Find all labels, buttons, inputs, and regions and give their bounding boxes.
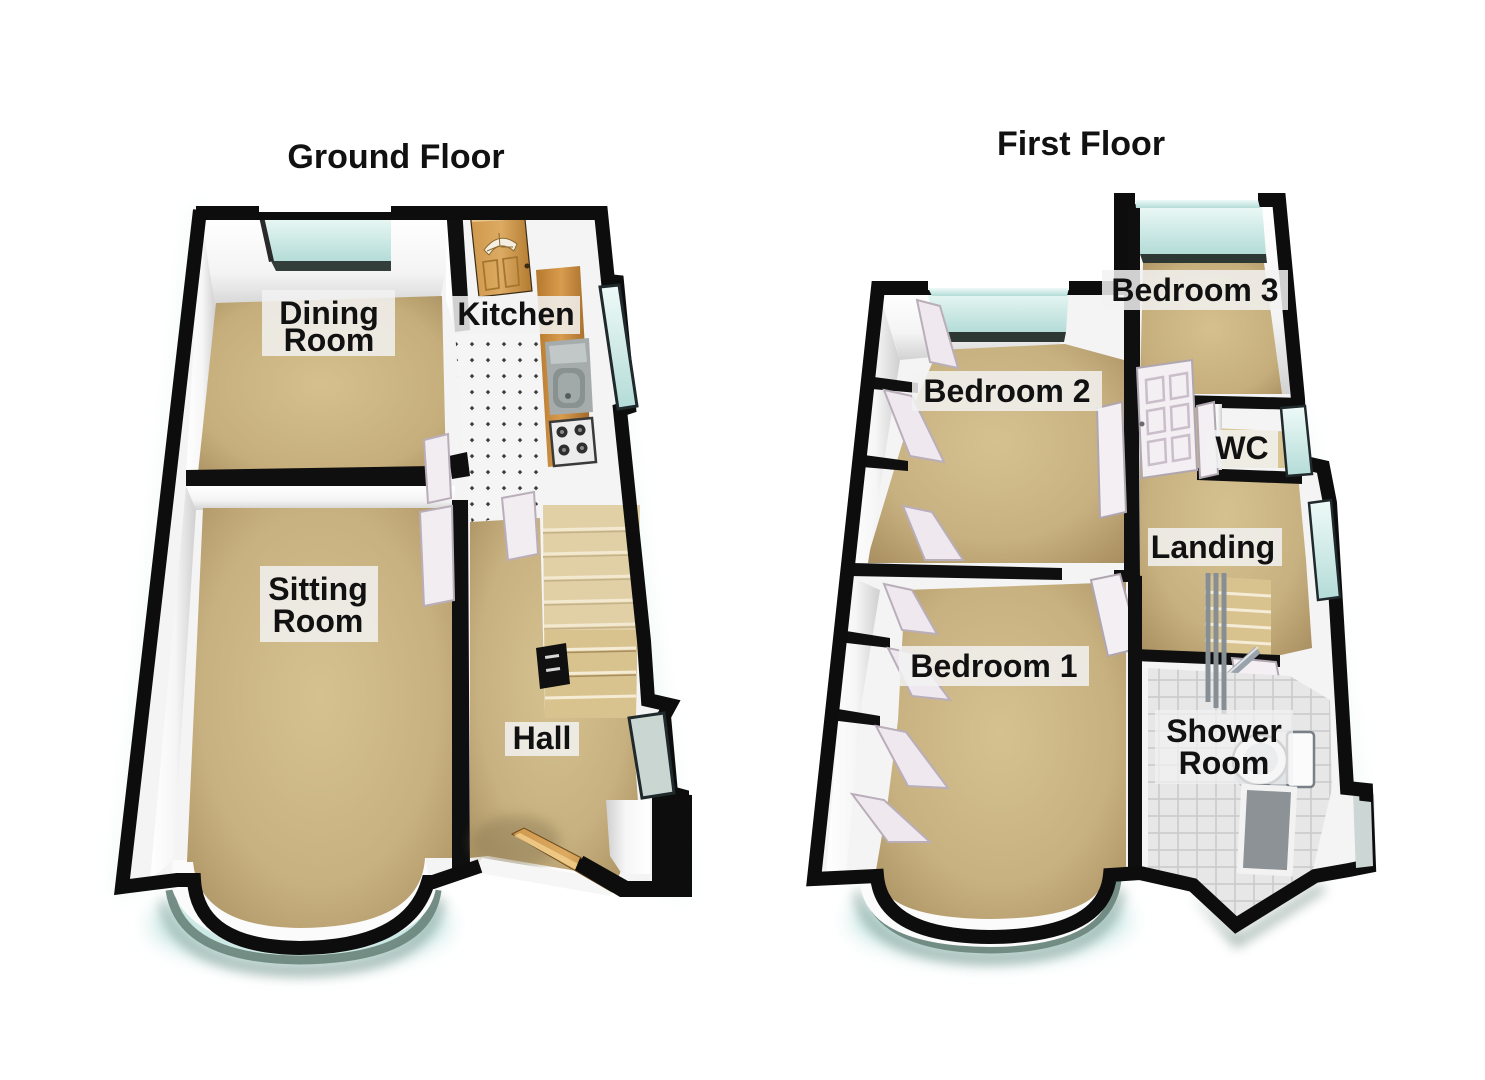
svg-text:Room: Room xyxy=(284,322,375,358)
svg-text:Room: Room xyxy=(1179,745,1270,781)
svg-text:Bedroom 3: Bedroom 3 xyxy=(1111,272,1278,308)
svg-text:Bedroom 1: Bedroom 1 xyxy=(910,648,1077,684)
svg-text:WC: WC xyxy=(1215,430,1268,466)
svg-text:Kitchen: Kitchen xyxy=(457,296,574,332)
svg-text:Sitting: Sitting xyxy=(268,571,368,607)
svg-text:Hall: Hall xyxy=(513,720,572,756)
svg-text:Ground Floor: Ground Floor xyxy=(287,138,504,176)
svg-text:First Floor: First Floor xyxy=(997,125,1165,163)
svg-text:Landing: Landing xyxy=(1151,529,1275,565)
svg-text:Shower: Shower xyxy=(1166,713,1282,749)
svg-text:Room: Room xyxy=(273,603,364,639)
svg-text:Bedroom 2: Bedroom 2 xyxy=(923,373,1090,409)
